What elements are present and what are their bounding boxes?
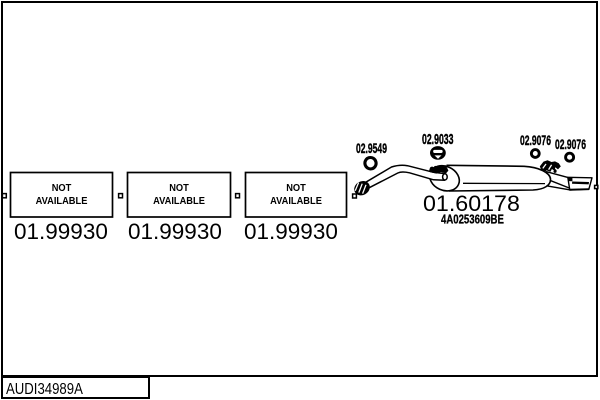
svg-text:4A0253609BE: 4A0253609BE <box>441 213 504 226</box>
svg-text:AVAILABLE: AVAILABLE <box>270 196 322 207</box>
svg-text:01.99930: 01.99930 <box>128 219 222 244</box>
svg-text:02.9033: 02.9033 <box>422 131 454 148</box>
svg-text:NOT: NOT <box>169 183 189 194</box>
svg-text:01.99930: 01.99930 <box>14 219 108 244</box>
svg-text:AVAILABLE: AVAILABLE <box>153 196 205 207</box>
svg-text:02.9076: 02.9076 <box>520 133 551 149</box>
svg-text:01.60178: 01.60178 <box>423 190 520 216</box>
svg-text:NOT: NOT <box>52 183 72 194</box>
svg-text:01.99930: 01.99930 <box>244 219 338 244</box>
svg-text:02.9076: 02.9076 <box>555 137 586 153</box>
svg-text:AUDI34989A: AUDI34989A <box>6 381 83 398</box>
svg-text:02.9549: 02.9549 <box>356 141 387 157</box>
svg-text:NOT: NOT <box>286 183 306 194</box>
svg-text:AVAILABLE: AVAILABLE <box>36 196 88 207</box>
